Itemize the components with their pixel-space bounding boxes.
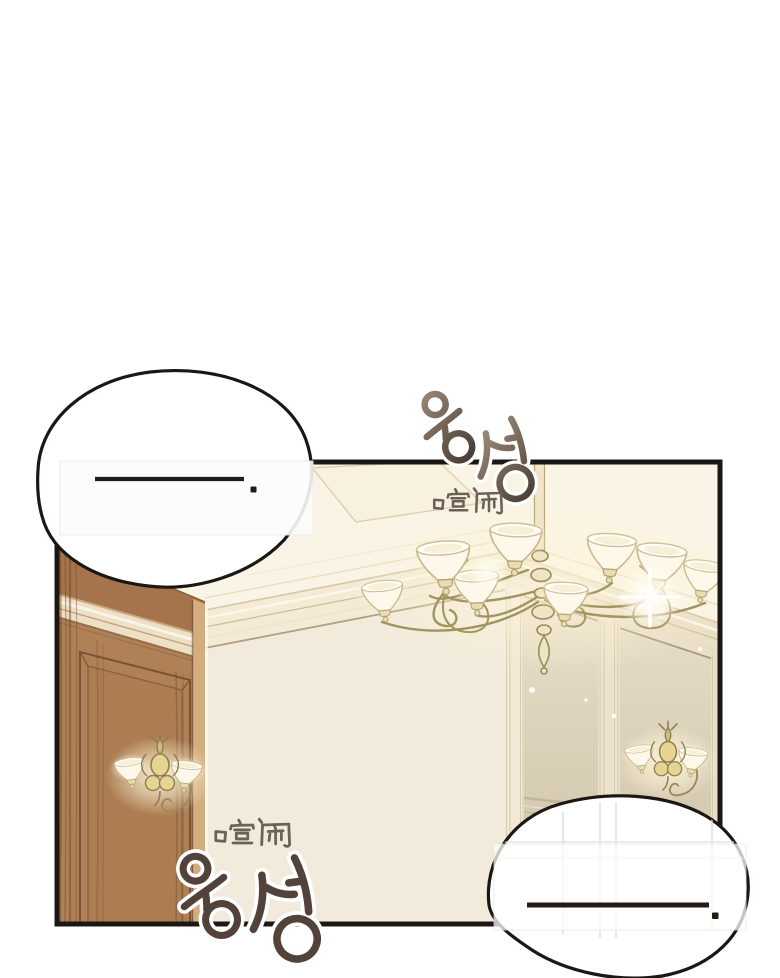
sfx-murmur-top: 웅성 喧闹	[408, 386, 540, 518]
bubble-bottom-text: ──.	[486, 796, 487, 797]
comic-page[interactable]: ──. ──. 웅성 喧闹 웅성 喧闹	[0, 0, 780, 978]
sfx-top-chinese: 喧闹	[408, 386, 409, 387]
speech-bubble-bottom-right: ──.	[486, 796, 754, 978]
sfx-top-korean: 웅성	[408, 386, 409, 387]
bubble-top-text: ──.	[38, 368, 39, 369]
speech-bubble-top-left: ──.	[38, 368, 316, 592]
sfx-bottom-chinese: 喧闹	[166, 812, 167, 813]
sfx-murmur-bottom: 웅성 喧闹	[166, 812, 318, 972]
sfx-bottom-korean: 웅성	[166, 812, 167, 813]
